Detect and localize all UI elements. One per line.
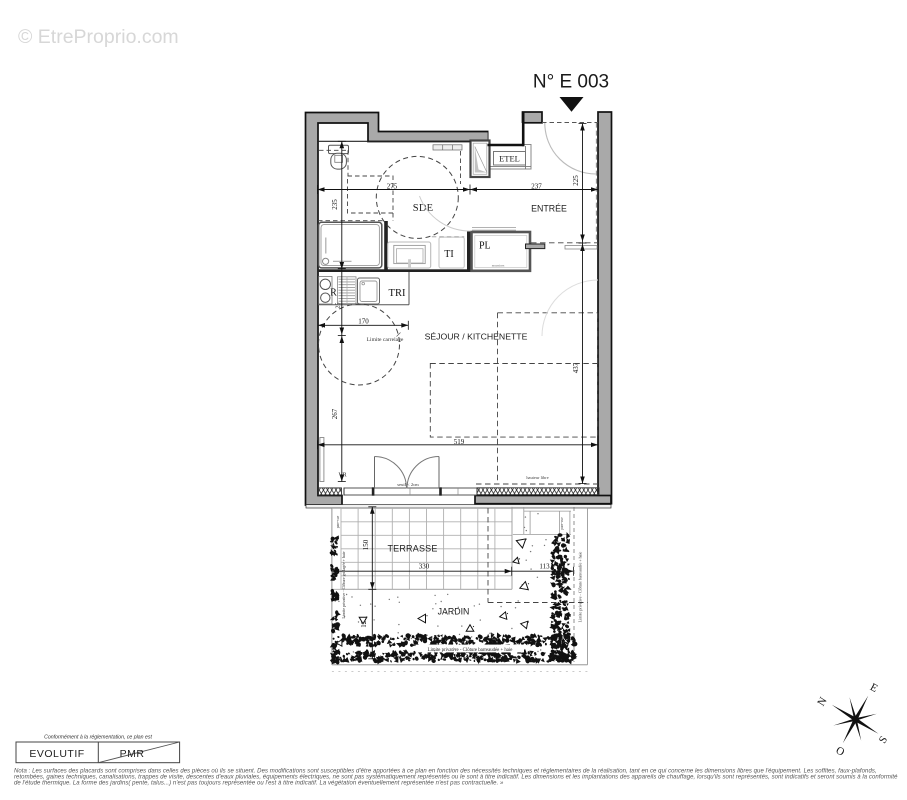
svg-text:TI: TI [444, 249, 453, 260]
svg-text:237: 237 [531, 182, 542, 190]
svg-text:ENTRÉE: ENTRÉE [531, 204, 567, 214]
svg-text:VR: VR [338, 473, 346, 479]
svg-text:Conformément à la réglementati: Conformément à la réglementation, ce pla… [44, 735, 152, 741]
svg-text:267: 267 [331, 408, 339, 419]
svg-text:150: 150 [362, 539, 370, 550]
svg-text:SDE: SDE [413, 203, 433, 214]
svg-text:113: 113 [539, 563, 550, 571]
svg-text:hauteur libre: hauteur libre [526, 475, 548, 480]
svg-text:Limite privative - Clôture bar: Limite privative - Clôture barreaudée + … [428, 648, 513, 653]
svg-text:TRI: TRI [389, 288, 406, 299]
svg-text:nourrices: nourrices [492, 263, 505, 267]
svg-text:R: R [330, 288, 337, 299]
svg-text:Limite privative - Clôture gri: Limite privative - Clôture grillagée + h… [341, 551, 346, 618]
svg-text:330: 330 [419, 563, 430, 571]
svg-text:ETEL: ETEL [499, 154, 520, 164]
svg-text:275: 275 [387, 182, 398, 190]
svg-text:225: 225 [572, 175, 580, 186]
svg-text:seuil < 2cm: seuil < 2cm [397, 482, 419, 487]
svg-text:TERRASSE: TERRASSE [387, 544, 437, 554]
svg-text:519: 519 [454, 438, 465, 446]
svg-text:pare-vue: pare-vue [336, 515, 340, 528]
svg-text:pare-vue: pare-vue [560, 517, 564, 530]
svg-text:437: 437 [572, 362, 580, 373]
svg-text:de l'étude thermique. La forme: de l'étude thermique. La forme des jardi… [14, 781, 504, 787]
svg-text:Limite carrelage: Limite carrelage [367, 337, 404, 343]
svg-text:EVOLUTIF: EVOLUTIF [29, 748, 84, 760]
svg-text:PL: PL [479, 241, 491, 252]
svg-text:235: 235 [331, 199, 339, 210]
svg-text:SÉJOUR / KITCHENETTE: SÉJOUR / KITCHENETTE [425, 332, 528, 342]
svg-text:Limite privative - Clôture bar: Limite privative - Clôture barreaudée + … [578, 551, 583, 622]
svg-text:N° E 003: N° E 003 [533, 72, 609, 93]
svg-text:JARDIN: JARDIN [438, 607, 470, 617]
svg-text:PMR: PMR [120, 748, 145, 760]
svg-text:25: 25 [336, 303, 342, 309]
svg-text:© EtreProprio.com: © EtreProprio.com [18, 26, 179, 48]
svg-text:170: 170 [358, 318, 369, 326]
